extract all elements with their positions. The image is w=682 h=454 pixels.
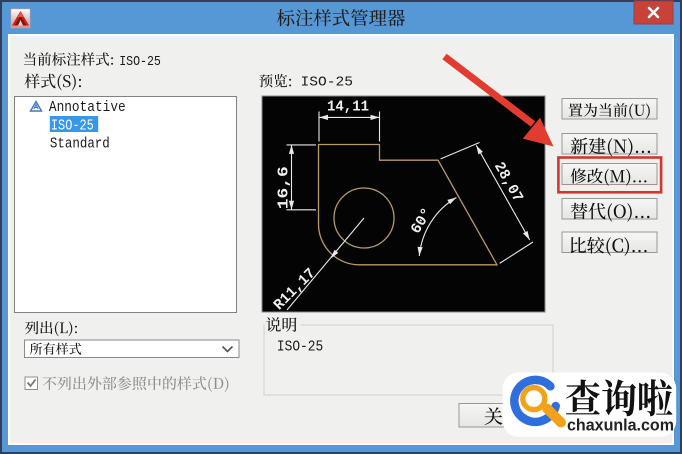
svg-text:Annotative: Annotative bbox=[49, 100, 126, 116]
svg-text:ISO-25: ISO-25 bbox=[51, 119, 94, 135]
svg-text:16,6: 16,6 bbox=[276, 166, 293, 209]
svg-text:Standard: Standard bbox=[50, 137, 110, 153]
svg-text:ISO-25: ISO-25 bbox=[119, 54, 161, 70]
svg-text:14,11: 14,11 bbox=[327, 99, 369, 116]
svg-text:chaxunla.com: chaxunla.com bbox=[567, 417, 674, 435]
svg-text:ISO-25: ISO-25 bbox=[277, 340, 323, 356]
svg-text:ISO-25: ISO-25 bbox=[301, 75, 354, 91]
